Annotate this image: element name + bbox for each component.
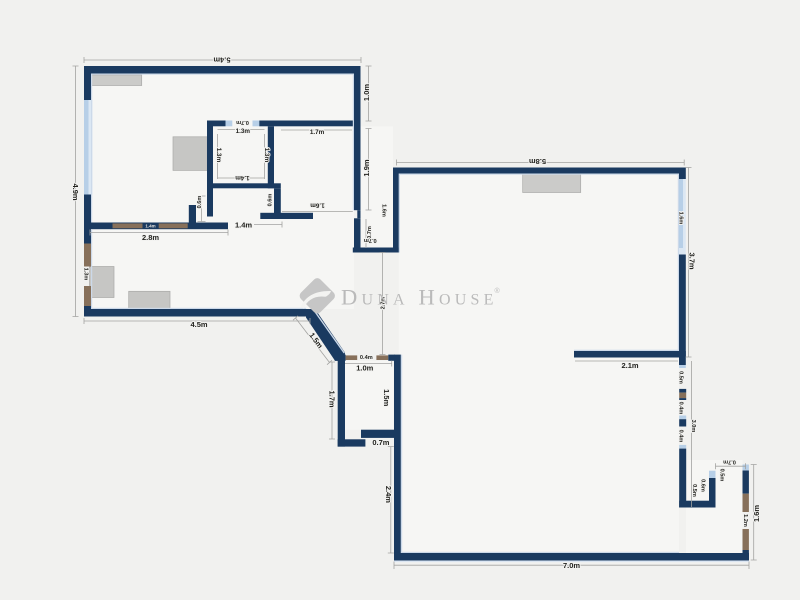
svg-text:0.5m: 0.5m: [719, 469, 725, 482]
svg-text:0.6m: 0.6m: [700, 479, 706, 492]
svg-text:0.7m: 0.7m: [236, 119, 249, 125]
svg-text:5.4m: 5.4m: [213, 56, 230, 65]
svg-text:1.9m: 1.9m: [362, 159, 371, 176]
svg-text:1.5m: 1.5m: [382, 389, 391, 406]
svg-text:0.6m: 0.6m: [268, 194, 274, 207]
svg-text:4.9m: 4.9m: [71, 183, 80, 200]
svg-text:1.2m: 1.2m: [742, 514, 748, 527]
svg-text:0.4m: 0.4m: [678, 430, 684, 443]
svg-text:1.7m: 1.7m: [328, 390, 337, 407]
svg-text:0.7m: 0.7m: [723, 459, 736, 465]
svg-text:1.4m: 1.4m: [235, 174, 250, 181]
svg-text:0.4m: 0.4m: [678, 402, 684, 415]
svg-text:Duna House: Duna House: [341, 285, 498, 310]
svg-text:1.7m: 1.7m: [310, 129, 325, 136]
svg-text:0.7m: 0.7m: [372, 438, 389, 447]
svg-text:1.6m: 1.6m: [310, 202, 325, 209]
svg-text:1.0m: 1.0m: [356, 364, 373, 373]
svg-text:5.8m: 5.8m: [529, 157, 546, 166]
svg-text:3.7m: 3.7m: [687, 252, 696, 269]
svg-text:0.5m: 0.5m: [678, 371, 684, 384]
svg-text:®: ®: [495, 287, 501, 295]
svg-text:1.3m: 1.3m: [215, 148, 222, 163]
svg-text:1.3m: 1.3m: [263, 148, 270, 163]
svg-text:0.7m: 0.7m: [367, 226, 373, 239]
svg-text:7.0m: 7.0m: [563, 561, 580, 570]
svg-text:0.7m: 0.7m: [364, 237, 377, 243]
svg-text:1.4m: 1.4m: [145, 223, 155, 228]
svg-text:4.5m: 4.5m: [190, 320, 207, 329]
svg-text:1.3m: 1.3m: [236, 128, 251, 135]
svg-text:0.6m: 0.6m: [197, 196, 203, 209]
svg-text:2.4m: 2.4m: [384, 486, 393, 503]
svg-text:1.6m: 1.6m: [752, 505, 761, 522]
svg-text:3.0m: 3.0m: [690, 420, 696, 433]
svg-text:2.1m: 2.1m: [621, 361, 638, 370]
svg-text:0.4m: 0.4m: [360, 355, 373, 361]
svg-text:0.5m: 0.5m: [691, 484, 697, 497]
svg-text:2.8m: 2.8m: [142, 233, 159, 242]
svg-text:1.0m: 1.0m: [362, 84, 371, 101]
svg-text:1.6m: 1.6m: [381, 204, 387, 217]
svg-text:1.3m: 1.3m: [83, 268, 89, 281]
svg-text:1.4m: 1.4m: [235, 221, 252, 230]
